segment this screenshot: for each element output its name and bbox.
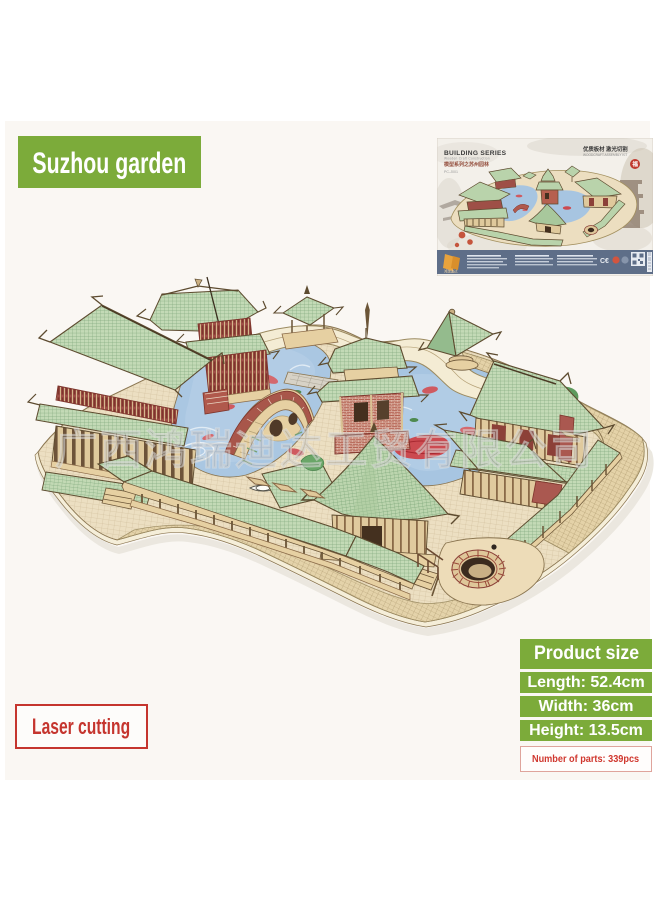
svg-text:广西鸿瑞迪达工贸有限公司: 广西鸿瑞迪达工贸有限公司 <box>55 426 595 473</box>
